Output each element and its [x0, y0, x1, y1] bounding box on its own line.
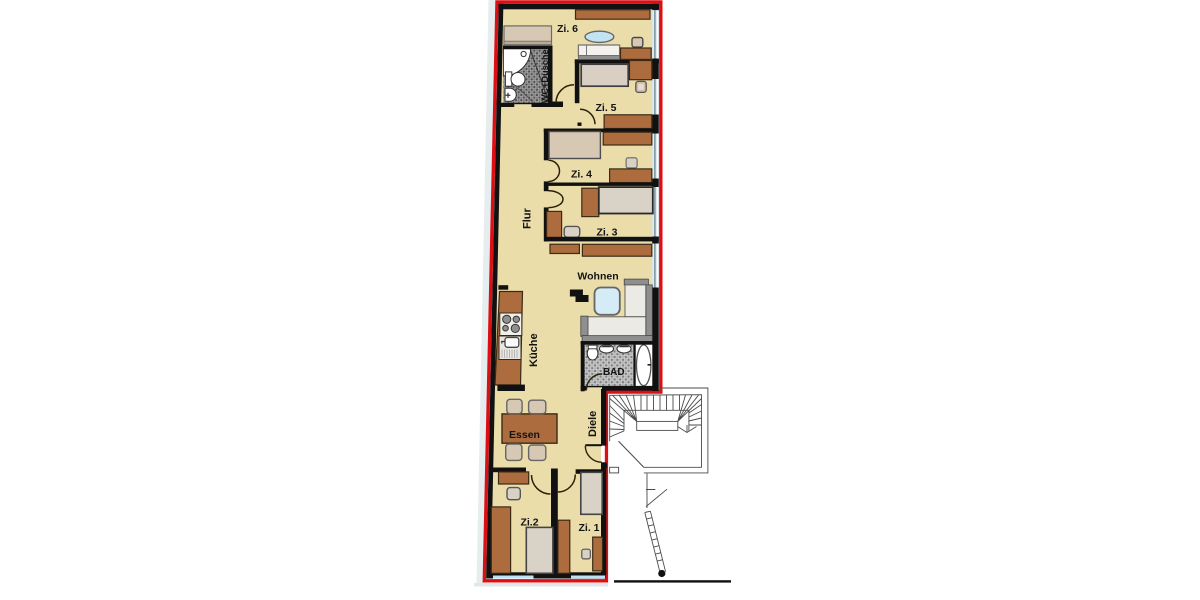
svg-text:Zi. 3: Zi. 3: [596, 227, 617, 239]
svg-text:Zi. 6: Zi. 6: [557, 23, 578, 35]
svg-text:Zi.2: Zi.2: [520, 517, 538, 529]
svg-text:BAD: BAD: [603, 367, 625, 378]
svg-text:Essen: Essen: [509, 429, 540, 441]
svg-text:Flur: Flur: [522, 208, 534, 229]
svg-text:Zi. 1: Zi. 1: [578, 522, 599, 534]
svg-text:Wohnen: Wohnen: [577, 271, 618, 283]
svg-text:Zi. 4: Zi. 4: [571, 169, 592, 181]
svg-text:WC+Dusche: WC+Dusche: [540, 49, 550, 103]
svg-text:Zi. 5: Zi. 5: [595, 102, 616, 114]
svg-text:Diele: Diele: [587, 411, 599, 437]
svg-text:Küche: Küche: [528, 333, 540, 367]
